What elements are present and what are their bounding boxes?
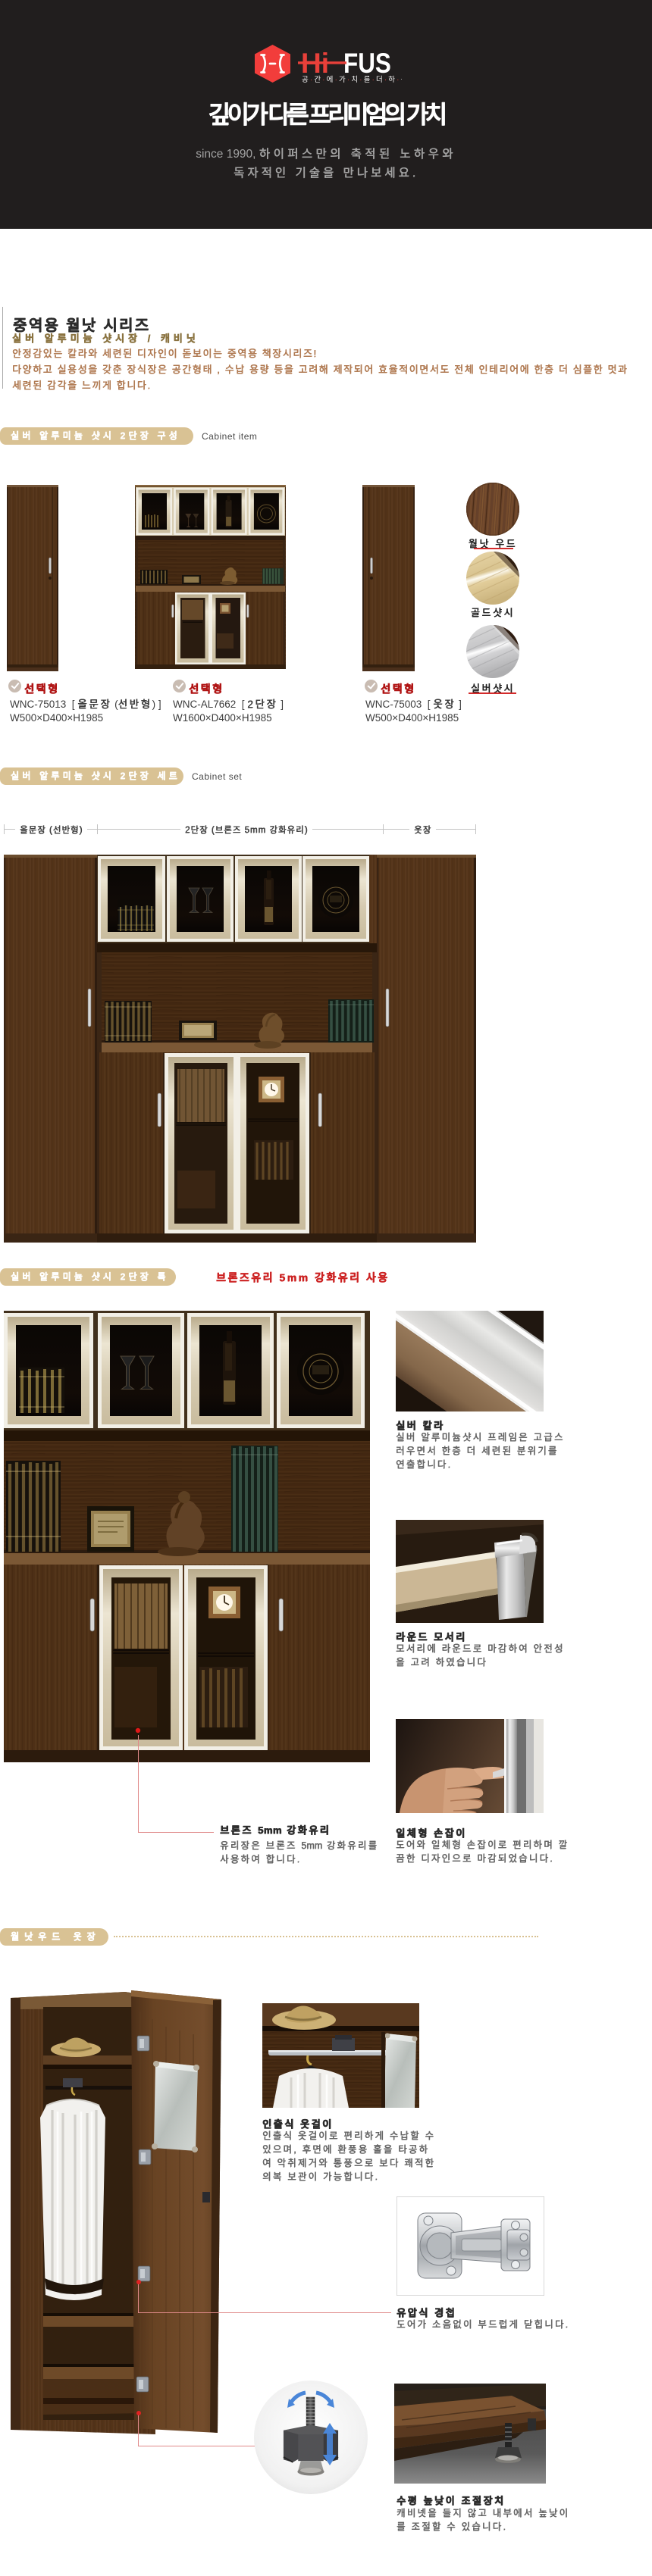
svg-text:FUS: FUS bbox=[343, 48, 391, 80]
svg-text:공·간·에·가·치·를·더·하·는: 공·간·에·가·치·를·더·하·는 bbox=[302, 75, 402, 84]
